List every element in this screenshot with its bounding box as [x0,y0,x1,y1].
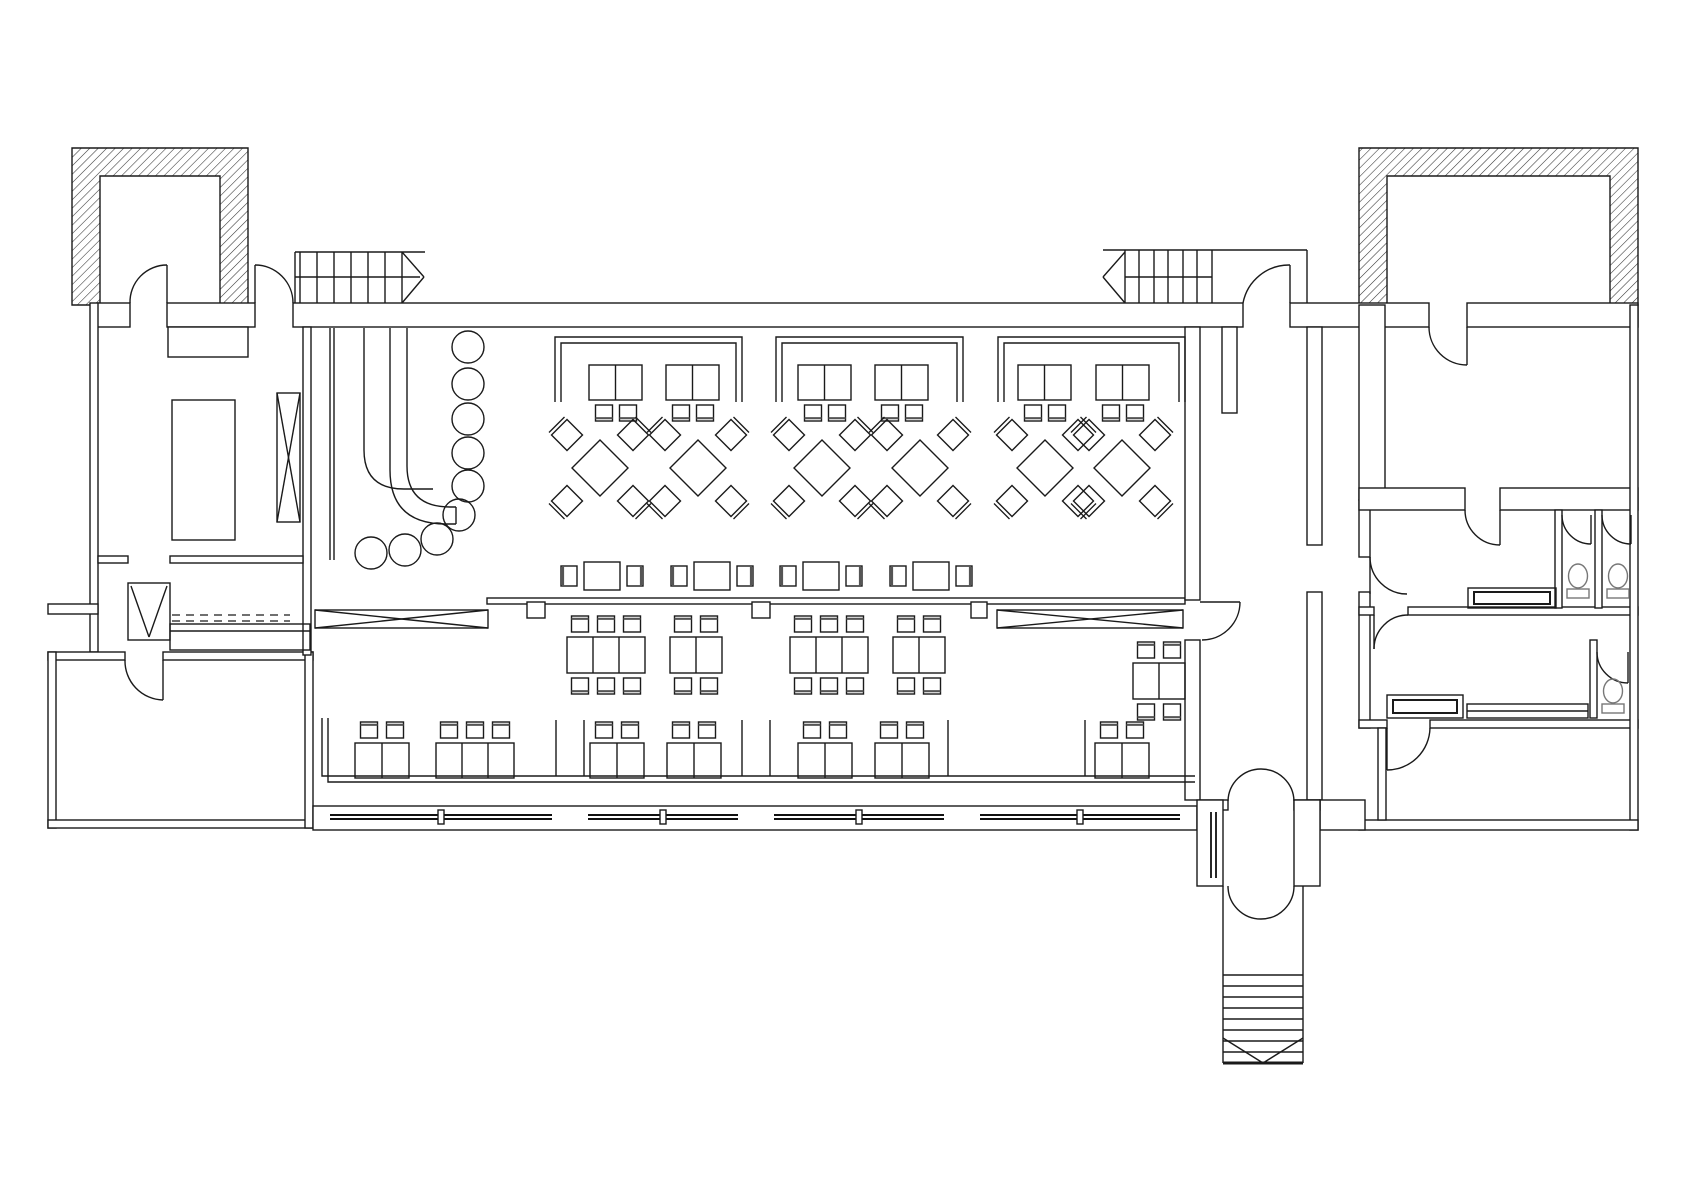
banquettes [322,337,1195,782]
diamond-table-group [994,417,1096,519]
chair-down [1164,704,1181,720]
floor-plan-canvas [0,0,1697,1200]
diamond-table-group [549,417,651,519]
diamond-table-group [794,440,850,496]
diamond-table-group [1017,440,1073,496]
bar-counter-outer [390,328,456,524]
toilet [1607,589,1629,598]
banquette-table-pair [1096,365,1149,421]
wall-west [90,303,98,652]
column-pillar [527,602,545,618]
door-arc [1387,728,1430,770]
bar-stool [452,470,484,502]
bar-stool [452,331,484,363]
bench-table-group [1095,722,1149,778]
banquette-back [561,343,736,402]
two-seat-table [584,562,620,590]
bar-stool [443,499,475,531]
dchair [771,417,805,451]
dchair [938,417,972,451]
chair-up [624,616,641,632]
double-door-arc [1261,886,1294,919]
dchair [774,420,805,451]
dchair [716,417,750,451]
stall-door-arc [1602,515,1631,544]
dchair [618,486,649,517]
dchair [774,486,805,517]
chair-up [1164,642,1181,658]
diamond-table-group [892,440,948,496]
furniture [355,331,1629,778]
kitchen-south-wall [170,556,303,563]
dchair [1140,486,1171,517]
door-arc [1243,265,1290,303]
chair-down [598,678,615,694]
toilet [1569,564,1588,588]
dchair [869,417,903,451]
chair-up [699,722,716,738]
door-arc [255,265,293,303]
porch-pier [1294,800,1320,886]
dining-table-group [567,637,645,673]
dining-table-group [790,616,868,694]
bar-counter-inner [364,328,433,489]
banquette-back [776,337,963,402]
dchair [840,486,871,517]
dchair [1140,420,1171,451]
diamond-table-group [1071,417,1173,519]
bar-stool [452,470,484,502]
chair-up [924,616,941,632]
bar-stool [452,368,484,400]
chair-up [804,722,821,738]
dchair [994,417,1028,451]
double-door-arc [1228,769,1261,801]
bench-table-group [875,722,929,778]
room-se-wall [1378,728,1386,820]
chair-down [898,678,915,694]
chair-up [821,616,838,632]
chair-down [1138,704,1155,720]
bench-table-group [798,722,852,778]
banquette-back [782,343,957,402]
dchair [647,486,681,520]
chair-up [361,722,378,738]
stair-break-arrow [402,252,424,277]
colonnade-wall [487,598,1185,604]
toilet [1607,564,1629,598]
dchair [1063,486,1094,517]
chair-up [830,722,847,738]
diamond-table-group [1094,440,1150,496]
floor-plan-page [0,0,1697,1200]
chair-down [624,678,641,694]
chair-up [598,616,615,632]
chair-up [1138,642,1155,658]
chair-up [701,616,718,632]
lobby-west-wall [1185,327,1200,600]
chimney-block-left [72,148,248,305]
sliding-partitions [315,602,1183,628]
chair-up [441,722,458,738]
dchair [938,420,969,451]
two-seat-table [913,562,949,590]
serving-counter [170,624,310,650]
dchair [938,486,972,520]
bench-table-group [436,722,514,778]
dchair [1074,420,1105,451]
wall-top-band [167,303,255,327]
dchair [549,486,583,520]
dchair [1140,486,1174,520]
kitchen-counter-top [168,327,248,357]
wall-top-band [97,303,130,327]
hopper-element [128,583,170,640]
bar-stool [389,534,421,566]
toilet [1567,564,1589,598]
hopper-v [131,586,149,637]
dchair [938,486,969,517]
room-sw-wall [163,652,313,660]
dchair [647,417,681,451]
diamond-table-group [670,440,726,496]
diamond-table-group [869,417,971,519]
room-sw-wall [48,652,56,828]
dchair [1063,420,1094,451]
chair-up [907,722,924,738]
dchair [1140,417,1174,451]
chair-up [847,616,864,632]
chair-down [829,405,846,421]
dchair [840,486,874,520]
banquette-back [555,337,742,402]
two-seat-table [671,562,753,590]
sink-counter-inner [1474,592,1550,604]
dining-table-group [893,616,945,694]
dining-table-group [567,616,645,694]
exterior-stair-arrow [1263,1038,1303,1063]
two-seat-table [803,562,839,590]
chair-up [1127,722,1144,738]
toilet [1567,589,1589,598]
door-arc [1374,615,1408,649]
stall-partition [1595,510,1602,608]
banquette-back [1004,343,1179,402]
restroom-wall [1359,607,1374,615]
room-sw-wall [305,652,313,828]
chair-down [805,405,822,421]
window-mullion [1077,810,1083,824]
bar [330,328,456,560]
lobby-stub-wall [1222,327,1237,413]
hatched-chimney-blocks [72,148,1638,305]
banquette-back [998,337,1185,402]
bar-stool [389,534,421,566]
chair-up [675,616,692,632]
chair-up [493,722,510,738]
dining-table-group [790,637,868,673]
chair-down [596,405,613,421]
wall-south-east [1359,820,1638,830]
bar-stool [452,331,484,363]
double-door-arc [1228,886,1261,919]
banquette-table-pair [875,365,928,421]
chair-up [572,616,589,632]
dchair [997,420,1028,451]
room-sw-wall [48,820,313,828]
kitchen-fixtures [128,393,310,650]
toilet [1602,704,1624,713]
chair-up [898,616,915,632]
door-arc [1429,327,1467,365]
banquette-table-pair [798,365,851,421]
dchair [552,486,583,517]
chair-down [620,405,637,421]
bar-stool [452,437,484,469]
exterior-stair-arrow [1223,1038,1263,1063]
diamond-table-group [771,417,873,519]
bar-stool [355,537,387,569]
dchair [872,420,903,451]
dchair [716,420,747,451]
door-arc [1370,557,1407,594]
bar-stool [452,403,484,435]
window-mullion [660,810,666,824]
wall-top-band [1467,303,1638,327]
dchair [840,417,874,451]
chair-up [622,722,639,738]
toilet [1602,679,1624,713]
kitchen-worktable [172,400,235,540]
door-arc [130,265,167,303]
two-seat-table [890,562,972,590]
room-sw-wall [48,652,125,660]
dchair [549,417,583,451]
banquette-table-pair [666,365,719,421]
two-seat-table [694,562,730,590]
two-seat-table [561,562,643,590]
bench-table-group [355,722,409,778]
bar-stool [452,368,484,400]
bench-table-group [436,743,514,778]
kitchen-south-wall [98,556,128,563]
sink-counter-inner [1393,700,1457,713]
toilet [1609,564,1628,588]
bench-south [322,718,1195,776]
dchair [716,486,750,520]
banquette-table-pair [589,365,642,421]
chair-down [882,405,899,421]
chair-down [673,405,690,421]
restroom-wall [1359,488,1465,510]
dchair [994,486,1028,520]
dchair [716,486,747,517]
chair-down [821,678,838,694]
dchair [552,420,583,451]
wall-south-connector [1320,800,1365,830]
chimney-block-right [1359,148,1638,305]
dchair [618,417,652,451]
two-seat-table [780,562,862,590]
dchair [840,420,871,451]
chair-down [906,405,923,421]
wall-top-band [293,303,1243,327]
stall-door-arc [1562,515,1591,544]
lobby-east-wall [1307,327,1322,545]
toilet [1604,679,1623,703]
bar-stool [421,523,453,555]
dchair [650,420,681,451]
stair-break-arrow [1103,277,1125,303]
stair-break-arrow [402,277,424,303]
window-mullion [438,810,444,824]
dchair [872,486,903,517]
flue-wall [1359,305,1385,500]
restroom-wall [1500,488,1638,510]
wall-west-stub [48,604,98,614]
chair-up [467,722,484,738]
hopper-v [149,586,167,637]
stair-break-arrow [1103,252,1125,277]
chair-up [673,722,690,738]
bar-stool [421,523,453,555]
chair-up [795,616,812,632]
door-arc [1465,510,1500,545]
dchair [771,486,805,520]
chair-up [1101,722,1118,738]
wall-east [1630,305,1638,830]
stall-partition [1590,640,1597,718]
chair-down [572,678,589,694]
bench-table-group [590,722,644,778]
chair-down [1049,405,1066,421]
walls [48,303,1638,886]
door-arc [125,660,163,700]
lobby-east-wall [1307,592,1322,800]
chair-down [1025,405,1042,421]
chair-down [675,678,692,694]
bench-table-group [667,722,721,778]
restroom-wall [1430,720,1638,728]
chair-down [924,678,941,694]
bar-counter-outer [407,328,456,507]
double-door-arc [1261,769,1294,801]
dchair [618,486,652,520]
bar-stool [355,537,387,569]
chair-up [881,722,898,738]
door-arc [1202,602,1240,640]
bar-stool [443,499,475,531]
chair-down [795,678,812,694]
bar-stool [452,403,484,435]
dchair [997,486,1028,517]
chair-down [847,678,864,694]
dining-table-group [670,616,722,694]
dchair [1074,486,1105,517]
chair-down [1127,405,1144,421]
diamond-table-group [572,440,628,496]
dchair [650,486,681,517]
banquette-table-pair [1018,365,1071,421]
chair-down [1103,405,1120,421]
dining-table-group [1133,642,1185,720]
chair-down [701,678,718,694]
column-pillar [971,602,987,618]
chair-up [596,722,613,738]
chair-down [697,405,714,421]
kitchen-east-wall [303,327,311,655]
porch-pier [1197,800,1223,886]
chair-up [387,722,404,738]
column-pillar [752,602,770,618]
dchair [869,486,903,520]
sink-counter [1387,695,1463,718]
bar-stool [452,437,484,469]
restroom-wall [1359,720,1387,728]
dchair [618,420,649,451]
window-mullion [856,810,862,824]
diamond-table-group [647,417,749,519]
